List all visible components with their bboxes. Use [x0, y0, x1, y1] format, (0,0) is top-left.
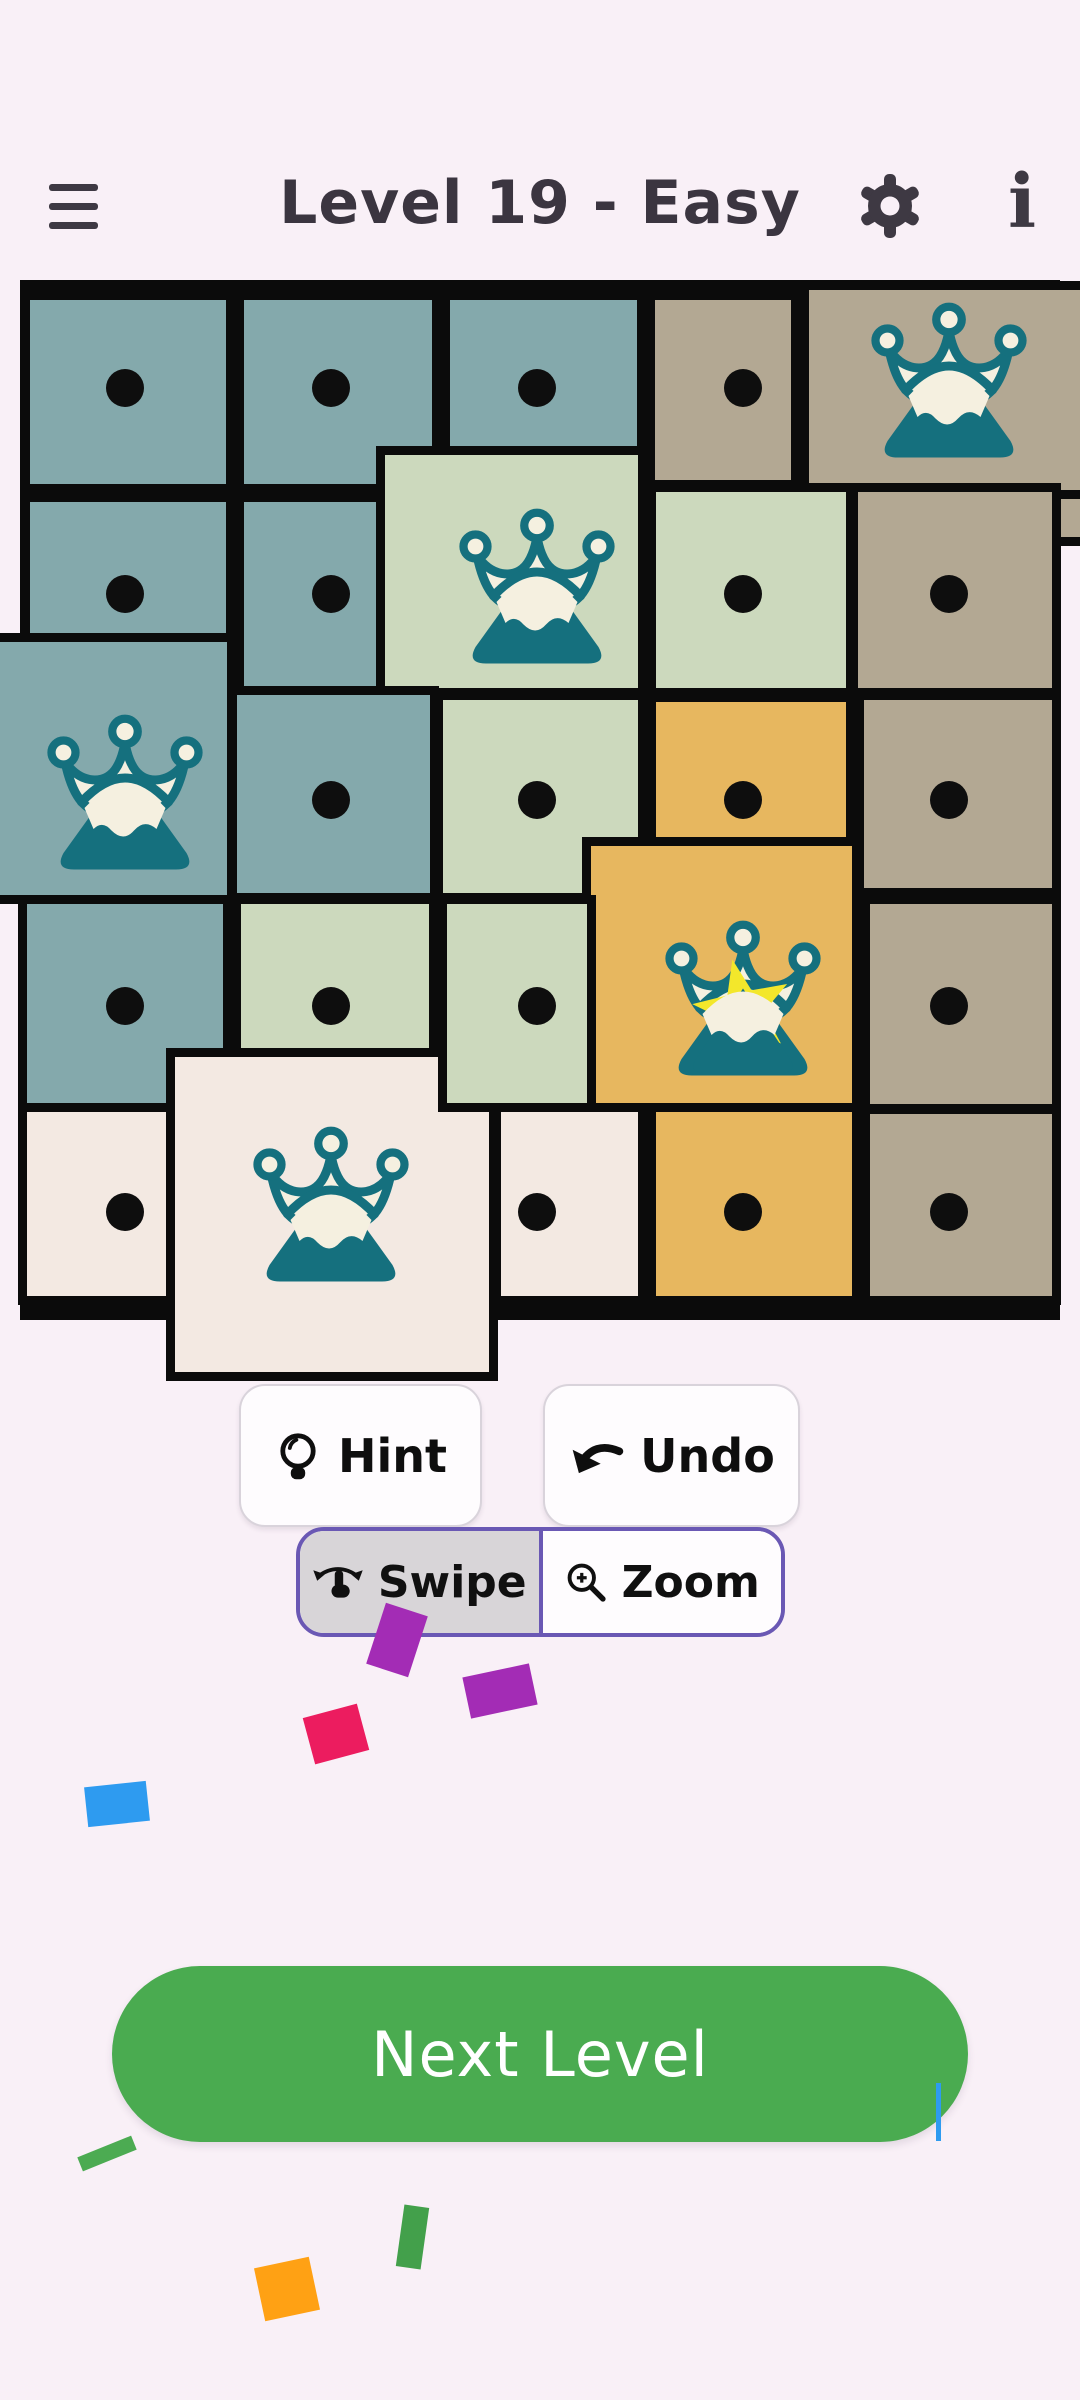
eliminated-dot: [518, 1193, 556, 1231]
swipe-label: Swipe: [378, 1557, 527, 1608]
eliminated-dot: [724, 369, 762, 407]
eliminated-dot: [724, 1193, 762, 1231]
eliminated-dot: [518, 369, 556, 407]
zoom-label: Zoom: [622, 1557, 760, 1608]
board-tile-green[interactable]: [241, 904, 429, 1048]
eliminated-dot: [312, 369, 350, 407]
eliminated-dot: [724, 575, 762, 613]
zoom-mode-button[interactable]: Zoom: [539, 1531, 782, 1633]
eliminated-dot: [930, 987, 968, 1025]
undo-label: Undo: [640, 1429, 775, 1483]
queen-crown-star-icon: [653, 919, 833, 1085]
mode-toggle: Swipe Zoom: [296, 1527, 785, 1637]
queen-crown-icon: [859, 301, 1039, 467]
hint-button[interactable]: Hint: [239, 1384, 482, 1527]
confetti-piece: [254, 2257, 320, 2321]
puzzle-board: [0, 0, 1080, 1400]
eliminated-dot: [106, 1193, 144, 1231]
eliminated-dot: [930, 1193, 968, 1231]
hint-label: Hint: [338, 1429, 447, 1483]
confetti-piece: [84, 1781, 150, 1827]
lightbulb-icon: [274, 1430, 322, 1482]
eliminated-dot: [312, 987, 350, 1025]
eliminated-dot: [518, 987, 556, 1025]
eliminated-dot: [106, 987, 144, 1025]
eliminated-dot: [930, 781, 968, 819]
eliminated-dot: [106, 369, 144, 407]
next-level-label: Next Level: [371, 2018, 709, 2091]
eliminated-dot: [724, 781, 762, 819]
confetti-piece: [77, 2136, 136, 2172]
board-tile-tan[interactable]: [1058, 499, 1080, 537]
eliminated-dot: [106, 575, 144, 613]
eliminated-dot: [518, 781, 556, 819]
eliminated-dot: [312, 575, 350, 613]
confetti-piece: [396, 2205, 429, 2270]
queen-crown-icon: [35, 713, 215, 879]
queen-crown-icon: [241, 1125, 421, 1291]
board-tile-tan[interactable]: [655, 300, 791, 480]
confetti-piece: [462, 1663, 537, 1718]
undo-arrow-icon: [568, 1434, 624, 1478]
eliminated-dot: [930, 575, 968, 613]
board-tile-green[interactable]: [447, 904, 587, 1103]
board-tile-orange[interactable]: [656, 702, 846, 840]
eliminated-dot: [312, 781, 350, 819]
board-tile-cream[interactable]: [27, 1112, 171, 1296]
swipe-gesture-icon: [312, 1559, 364, 1605]
game-screen: Level 19 - Easy i Hint: [0, 0, 1080, 2400]
undo-button[interactable]: Undo: [543, 1384, 800, 1527]
magnifier-plus-icon: [564, 1560, 608, 1604]
queen-crown-icon: [447, 507, 627, 673]
next-level-button[interactable]: Next Level: [112, 1966, 968, 2142]
confetti-piece: [936, 2083, 941, 2141]
confetti-piece: [303, 1704, 370, 1765]
